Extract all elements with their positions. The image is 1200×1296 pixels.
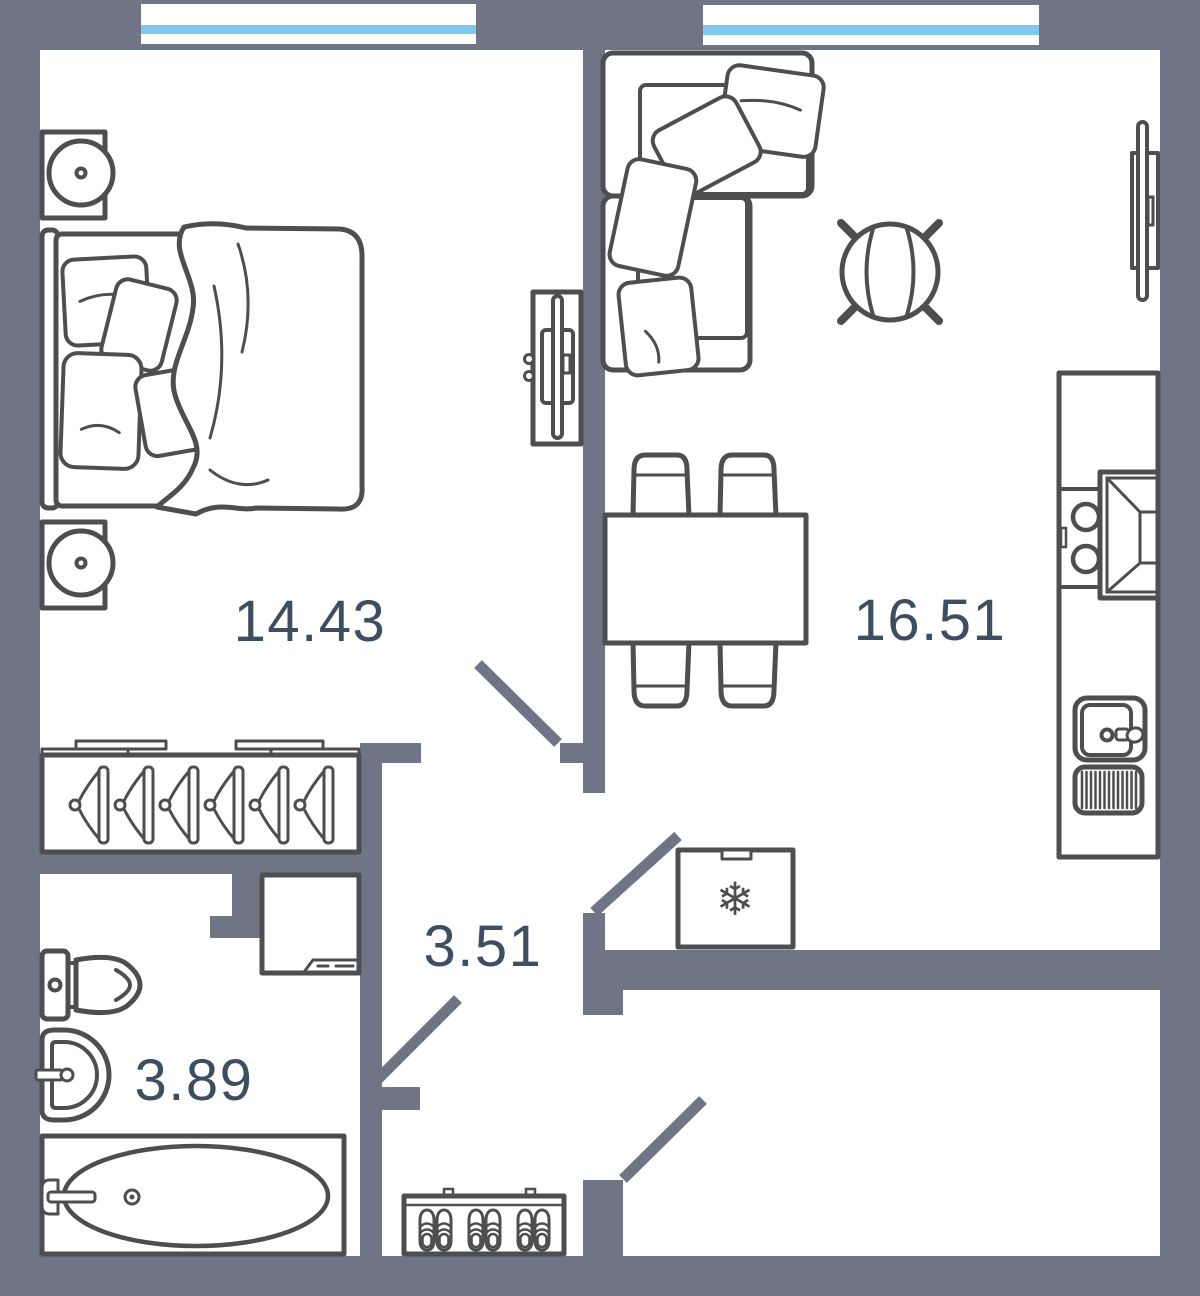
wardrobe-body bbox=[42, 755, 359, 852]
shoe-icon bbox=[437, 1210, 451, 1250]
shoe-icon bbox=[420, 1210, 434, 1250]
faucet-base bbox=[36, 1070, 62, 1080]
table-top bbox=[842, 224, 938, 320]
dining-chair bbox=[720, 642, 776, 706]
washer-body bbox=[262, 875, 359, 973]
pillow bbox=[60, 353, 142, 470]
dining-chair bbox=[720, 455, 776, 516]
entrance-corridor-floor bbox=[623, 990, 1160, 1256]
basin-outer bbox=[1100, 472, 1158, 598]
tv-knob bbox=[525, 372, 534, 381]
tv-screen bbox=[553, 296, 562, 438]
shoe-icon bbox=[535, 1210, 549, 1250]
lamp bbox=[49, 531, 113, 595]
tv-screen bbox=[1138, 122, 1147, 300]
dining-table bbox=[605, 515, 806, 643]
duct-shaft-lip bbox=[210, 916, 232, 938]
shoe-icon bbox=[486, 1210, 500, 1250]
dish-drainer bbox=[1075, 767, 1142, 813]
pillow bbox=[617, 276, 699, 376]
window-glass bbox=[141, 25, 476, 34]
tv-knob bbox=[525, 355, 534, 364]
window-bedroom bbox=[141, 4, 476, 44]
bedroom-door-threshold bbox=[421, 743, 560, 763]
living-area-label: 16.51 bbox=[854, 588, 1007, 653]
duct-shaft bbox=[232, 874, 262, 938]
floor-plan: ❄ bbox=[0, 0, 1200, 1296]
faucet-knob bbox=[61, 1069, 73, 1081]
fridge: ❄ bbox=[678, 850, 793, 947]
tv-bedroom bbox=[525, 292, 582, 444]
window-glass bbox=[703, 25, 1039, 35]
living-door-threshold bbox=[583, 793, 605, 913]
shoe-icon bbox=[518, 1210, 532, 1250]
tub-drain-dot bbox=[130, 1195, 135, 1200]
hallway-area-label: 3.51 bbox=[424, 914, 543, 979]
double-bed bbox=[42, 224, 362, 514]
dining-chair bbox=[633, 455, 689, 516]
prep-sink bbox=[1075, 698, 1145, 760]
kitchen-counter bbox=[1059, 373, 1158, 857]
kitchen-sink-basin bbox=[1100, 472, 1158, 598]
bedroom-area-label: 14.43 bbox=[234, 589, 387, 654]
snowflake-icon: ❄ bbox=[716, 872, 755, 926]
toilet-tank bbox=[42, 951, 68, 1019]
shoe-icon bbox=[469, 1210, 483, 1250]
bathroom-area-label: 3.89 bbox=[135, 1048, 254, 1113]
washing-machine bbox=[262, 875, 359, 973]
hall-corridor-opening bbox=[583, 1015, 623, 1180]
toilet bbox=[42, 951, 140, 1019]
bathtub bbox=[42, 1136, 344, 1254]
dining-chair bbox=[633, 642, 689, 706]
window-living bbox=[703, 5, 1039, 45]
floor-plan-page: ❄ bbox=[0, 0, 1200, 1296]
lamp bbox=[49, 141, 113, 205]
window-frame bbox=[141, 4, 476, 44]
shoe-rack bbox=[404, 1189, 564, 1254]
fridge-hinge bbox=[722, 850, 751, 859]
hallway-floor bbox=[382, 763, 583, 1256]
bathroom-door-stub bbox=[360, 1087, 420, 1110]
washbasin bbox=[36, 1030, 109, 1120]
nightstand-bottom bbox=[42, 522, 113, 608]
drainer-ribs bbox=[1082, 772, 1136, 808]
wardrobe bbox=[42, 741, 359, 852]
nightstand-top bbox=[42, 132, 113, 218]
tub-faucet-spout bbox=[48, 1192, 95, 1202]
round-side-table bbox=[841, 223, 939, 321]
